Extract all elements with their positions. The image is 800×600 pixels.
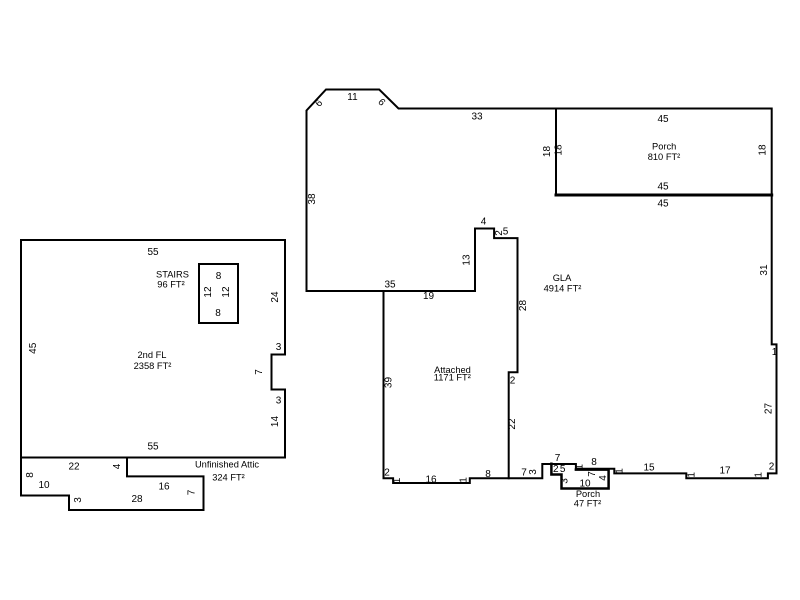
svg-text:19: 19 [423, 291, 435, 302]
svg-text:2: 2 [553, 464, 559, 475]
svg-text:45: 45 [28, 342, 39, 354]
svg-text:10: 10 [579, 479, 591, 490]
svg-text:96 FT²: 96 FT² [157, 280, 184, 290]
svg-text:4: 4 [598, 475, 609, 481]
svg-text:1: 1 [392, 477, 403, 483]
svg-text:8: 8 [25, 472, 36, 478]
svg-text:28: 28 [131, 494, 143, 505]
svg-text:39: 39 [384, 377, 395, 389]
svg-text:7: 7 [187, 489, 198, 495]
svg-text:24: 24 [270, 291, 281, 303]
svg-text:16: 16 [158, 482, 170, 493]
svg-text:12: 12 [203, 286, 214, 298]
svg-text:1: 1 [772, 347, 778, 358]
svg-text:Unfinished Attic: Unfinished Attic [195, 460, 259, 470]
svg-text:1: 1 [615, 468, 626, 474]
svg-text:18: 18 [758, 144, 769, 156]
svg-text:1: 1 [575, 464, 586, 470]
svg-text:2: 2 [510, 376, 516, 387]
svg-text:7: 7 [254, 369, 265, 375]
svg-text:27: 27 [764, 403, 775, 415]
svg-text:33: 33 [471, 112, 483, 123]
svg-text:7: 7 [555, 453, 561, 464]
svg-text:1: 1 [687, 472, 698, 478]
svg-text:55: 55 [147, 247, 159, 258]
svg-text:810 FT²: 810 FT² [648, 152, 681, 162]
svg-text:2358 FT²: 2358 FT² [134, 361, 172, 371]
svg-text:15: 15 [643, 463, 655, 474]
svg-text:3: 3 [528, 469, 539, 475]
svg-text:10: 10 [38, 480, 50, 491]
svg-text:STAIRS: STAIRS [156, 270, 189, 280]
svg-text:1: 1 [754, 472, 765, 478]
svg-text:324 FT²: 324 FT² [212, 472, 245, 482]
svg-text:1: 1 [459, 477, 470, 483]
svg-text:28: 28 [518, 300, 529, 312]
svg-text:2nd FL: 2nd FL [138, 350, 167, 360]
svg-text:8: 8 [485, 469, 491, 480]
svg-text:8: 8 [215, 308, 221, 319]
svg-text:8: 8 [216, 271, 222, 282]
svg-text:4914 FT²: 4914 FT² [544, 283, 582, 293]
svg-text:45: 45 [657, 199, 669, 210]
svg-text:5: 5 [503, 227, 509, 238]
svg-text:Porch: Porch [652, 141, 676, 151]
svg-text:12: 12 [221, 286, 232, 298]
svg-text:13: 13 [462, 254, 473, 266]
svg-text:35: 35 [384, 280, 396, 291]
svg-text:GLA: GLA [553, 273, 572, 283]
svg-text:2: 2 [769, 462, 775, 473]
svg-text:14: 14 [270, 416, 281, 428]
svg-text:7: 7 [587, 471, 598, 477]
svg-text:5: 5 [560, 464, 566, 475]
svg-text:18: 18 [542, 146, 553, 158]
svg-text:8: 8 [591, 457, 597, 468]
svg-text:17: 17 [719, 466, 731, 477]
svg-text:11: 11 [347, 92, 358, 103]
svg-text:22: 22 [507, 418, 518, 430]
svg-text:4: 4 [112, 463, 123, 469]
svg-text:18: 18 [554, 144, 565, 156]
svg-text:3: 3 [276, 342, 282, 353]
svg-text:38: 38 [307, 193, 318, 205]
svg-text:22: 22 [68, 462, 80, 473]
svg-text:3: 3 [276, 396, 282, 407]
svg-text:55: 55 [147, 442, 159, 453]
svg-text:47 FT²: 47 FT² [574, 499, 601, 509]
svg-text:16: 16 [425, 475, 437, 486]
svg-text:3: 3 [560, 478, 571, 484]
svg-text:4: 4 [481, 217, 487, 228]
svg-text:45: 45 [657, 182, 669, 193]
svg-text:7: 7 [521, 468, 527, 479]
svg-text:31: 31 [759, 264, 770, 276]
svg-text:3: 3 [73, 497, 84, 503]
svg-text:1171 FT²: 1171 FT² [434, 372, 471, 382]
svg-text:45: 45 [657, 114, 669, 125]
svg-text:2: 2 [384, 468, 390, 479]
